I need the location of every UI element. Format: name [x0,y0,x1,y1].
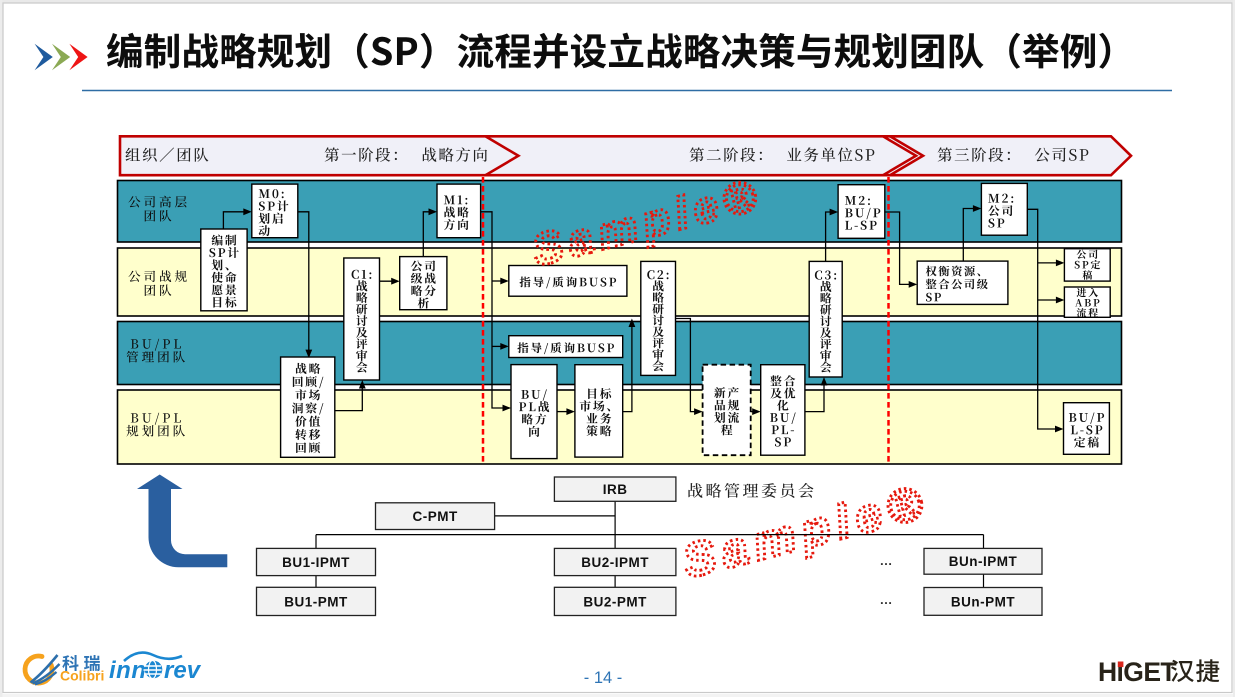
svg-text:C-PMT: C-PMT [412,509,457,524]
svg-text:…: … [880,592,893,607]
svg-text:- 14 -: - 14 - [584,669,623,687]
svg-text:BUn-PMT: BUn-PMT [951,594,1015,609]
svg-text:inn: inn [109,657,147,684]
svg-text:Colibri: Colibri [60,668,104,684]
svg-text:…: … [880,553,893,568]
svg-text:HiGET: HiGET [1098,657,1176,687]
svg-text:BUn-IPMT: BUn-IPMT [949,554,1018,569]
svg-text:IRB: IRB [603,482,628,497]
svg-text:rev: rev [164,657,202,684]
svg-text:BU2-IPMT: BU2-IPMT [581,555,649,570]
svg-text:BU1-PMT: BU1-PMT [284,594,348,609]
svg-text:BU2-PMT: BU2-PMT [583,594,647,609]
svg-text:BU1-IPMT: BU1-IPMT [282,555,350,570]
